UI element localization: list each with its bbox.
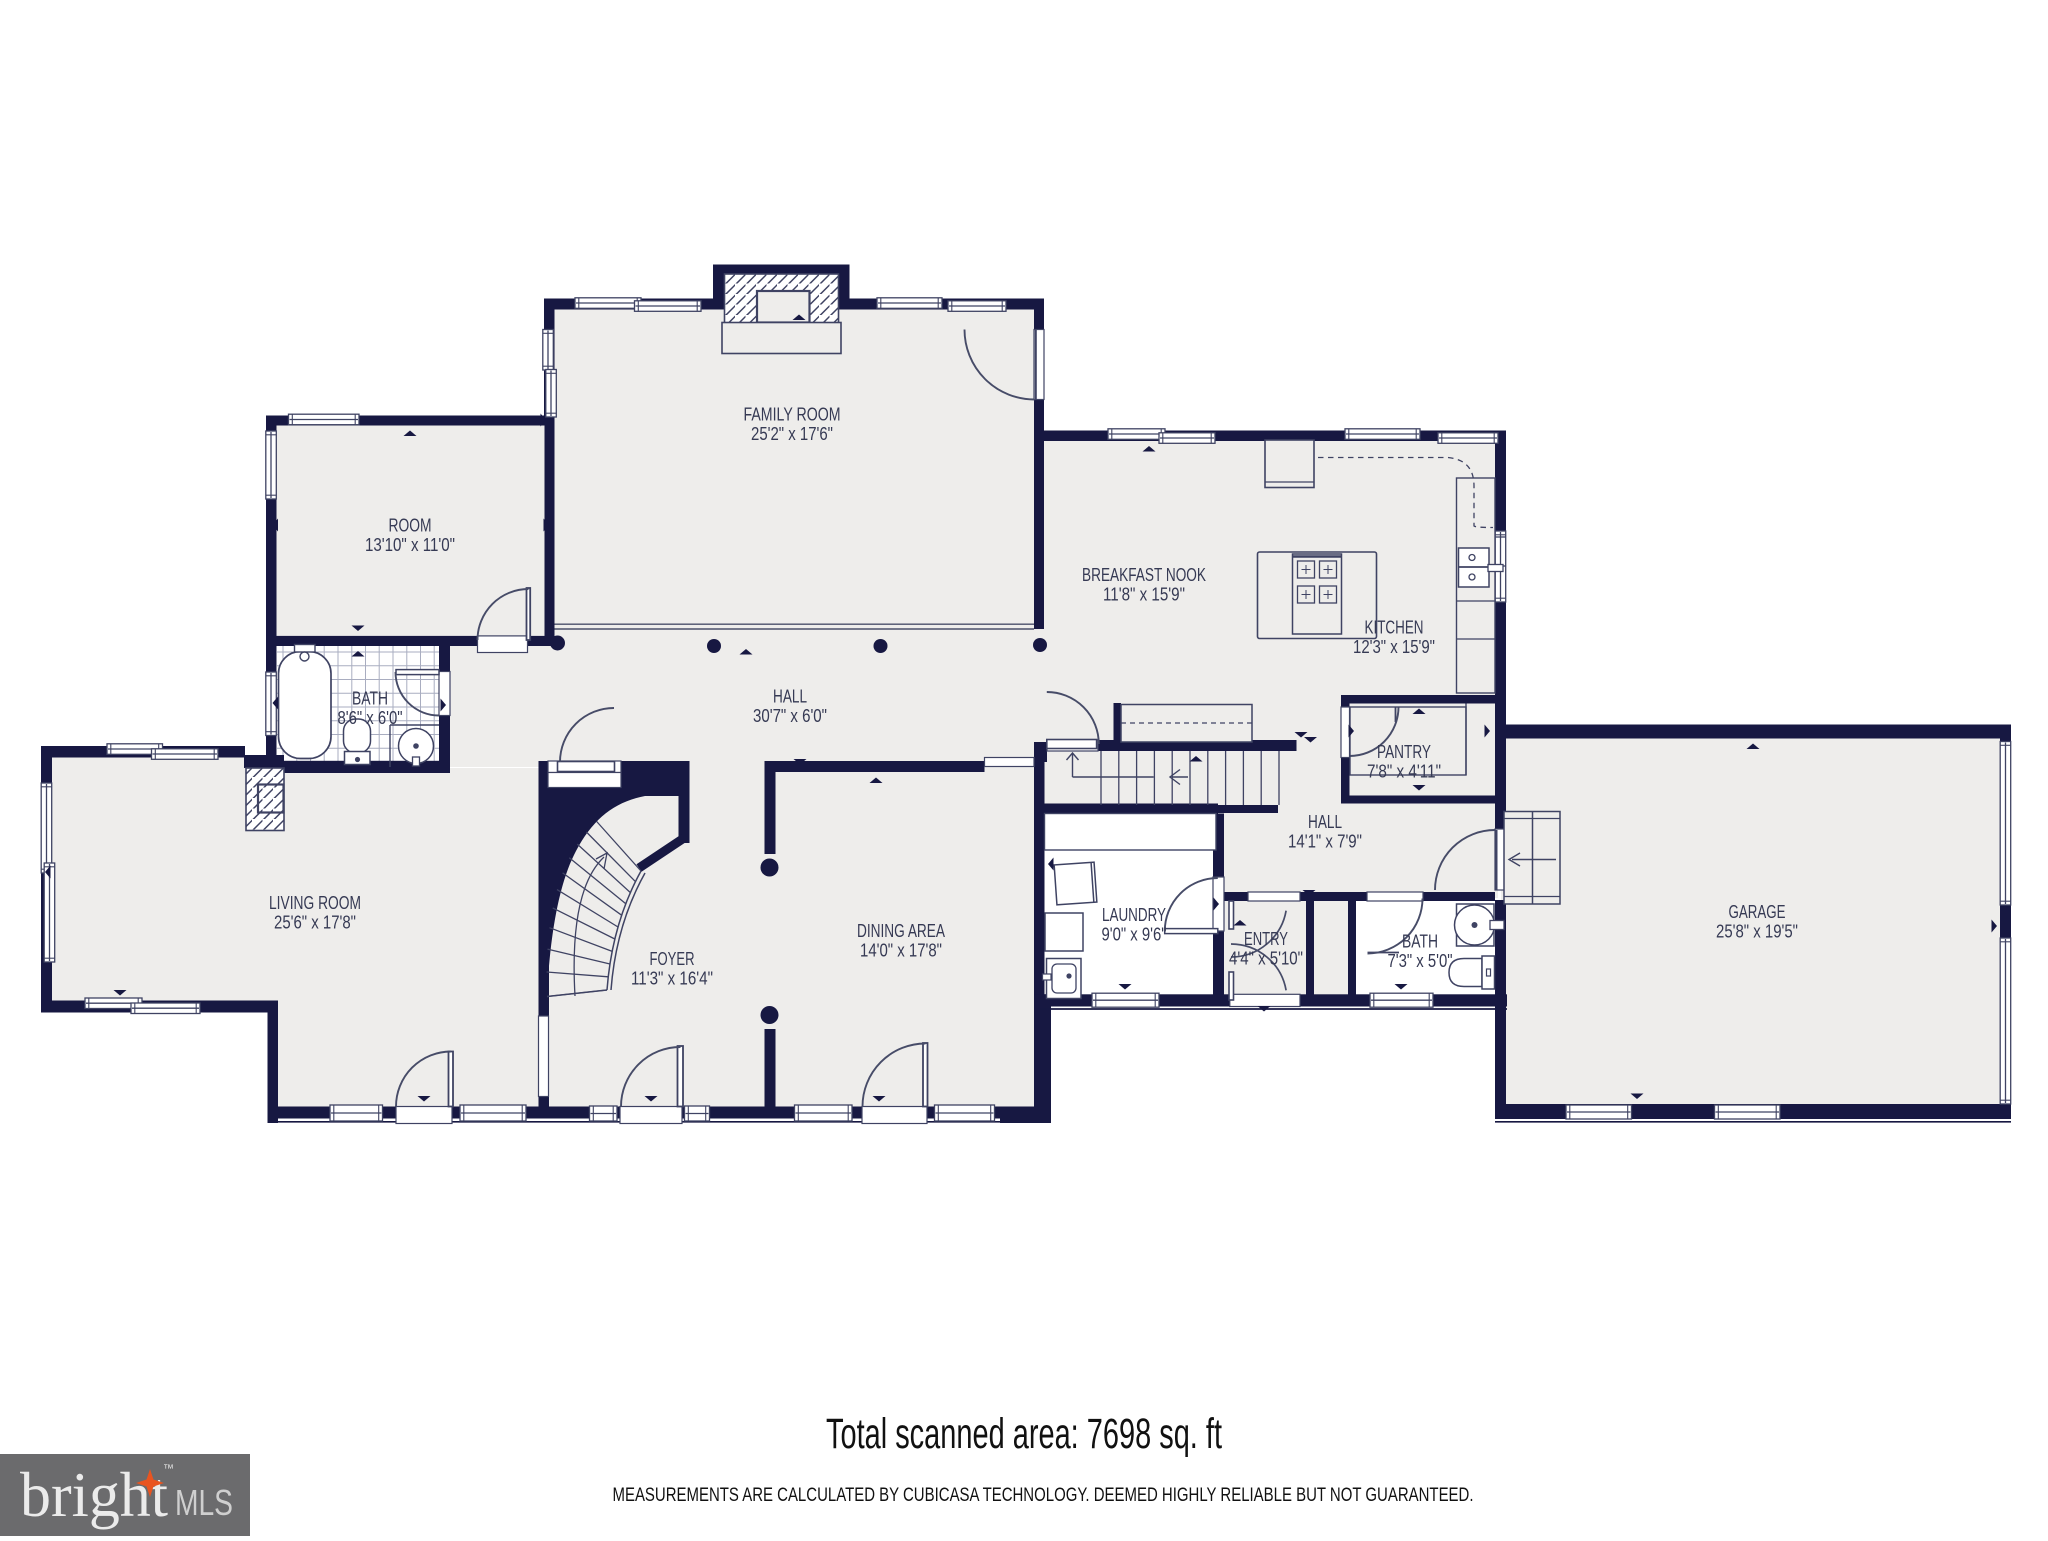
svg-text:12'3" x 15'9": 12'3" x 15'9" bbox=[1353, 636, 1435, 657]
svg-text:ENTRY: ENTRY bbox=[1244, 928, 1288, 949]
svg-text:PANTRY: PANTRY bbox=[1377, 741, 1431, 762]
svg-text:30'7" x 6'0": 30'7" x 6'0" bbox=[753, 705, 827, 726]
svg-text:4'4" x 5'10": 4'4" x 5'10" bbox=[1229, 947, 1303, 968]
svg-text:11'8" x 15'9": 11'8" x 15'9" bbox=[1103, 583, 1185, 604]
svg-text:7'3" x 5'0": 7'3" x 5'0" bbox=[1388, 950, 1453, 971]
svg-text:ROOM: ROOM bbox=[389, 515, 432, 536]
svg-text:FOYER: FOYER bbox=[650, 948, 695, 969]
svg-text:MLS: MLS bbox=[175, 1482, 233, 1523]
svg-text:25'2" x 17'6": 25'2" x 17'6" bbox=[751, 423, 833, 444]
svg-text:KITCHEN: KITCHEN bbox=[1365, 617, 1424, 638]
svg-text:BATH: BATH bbox=[352, 688, 388, 709]
svg-text:bright: bright bbox=[20, 1459, 168, 1530]
svg-text:11'3" x 16'4": 11'3" x 16'4" bbox=[631, 967, 713, 988]
svg-text:BATH: BATH bbox=[1402, 931, 1438, 952]
svg-text:MEASUREMENTS ARE CALCULATED BY: MEASUREMENTS ARE CALCULATED BY CUBICASA … bbox=[613, 1485, 1474, 1506]
svg-text:HALL: HALL bbox=[773, 686, 807, 707]
svg-text:14'0" x 17'8": 14'0" x 17'8" bbox=[860, 939, 942, 960]
svg-text:Total scanned area: 7698 sq. f: Total scanned area: 7698 sq. ft bbox=[826, 1411, 1222, 1458]
svg-text:13'10" x 11'0": 13'10" x 11'0" bbox=[365, 534, 455, 555]
svg-text:9'0" x 9'6": 9'0" x 9'6" bbox=[1102, 923, 1167, 944]
svg-text:DINING AREA: DINING AREA bbox=[857, 920, 945, 941]
svg-text:FAMILY ROOM: FAMILY ROOM bbox=[744, 404, 841, 425]
svg-text:GARAGE: GARAGE bbox=[1729, 901, 1786, 922]
svg-text:BREAKFAST NOOK: BREAKFAST NOOK bbox=[1082, 564, 1206, 585]
svg-text:25'6" x 17'8": 25'6" x 17'8" bbox=[274, 911, 356, 932]
svg-text:14'1" x 7'9": 14'1" x 7'9" bbox=[1288, 830, 1362, 851]
svg-text:LIVING ROOM: LIVING ROOM bbox=[269, 892, 361, 913]
svg-text:HALL: HALL bbox=[1308, 811, 1342, 832]
svg-text:25'8" x 19'5": 25'8" x 19'5" bbox=[1716, 920, 1798, 941]
svg-text:LAUNDRY: LAUNDRY bbox=[1102, 904, 1166, 925]
svg-text:8'6" x 6'0": 8'6" x 6'0" bbox=[338, 707, 403, 728]
svg-text:7'8" x 4'11": 7'8" x 4'11" bbox=[1367, 760, 1441, 781]
svg-text:™: ™ bbox=[163, 1463, 174, 1475]
